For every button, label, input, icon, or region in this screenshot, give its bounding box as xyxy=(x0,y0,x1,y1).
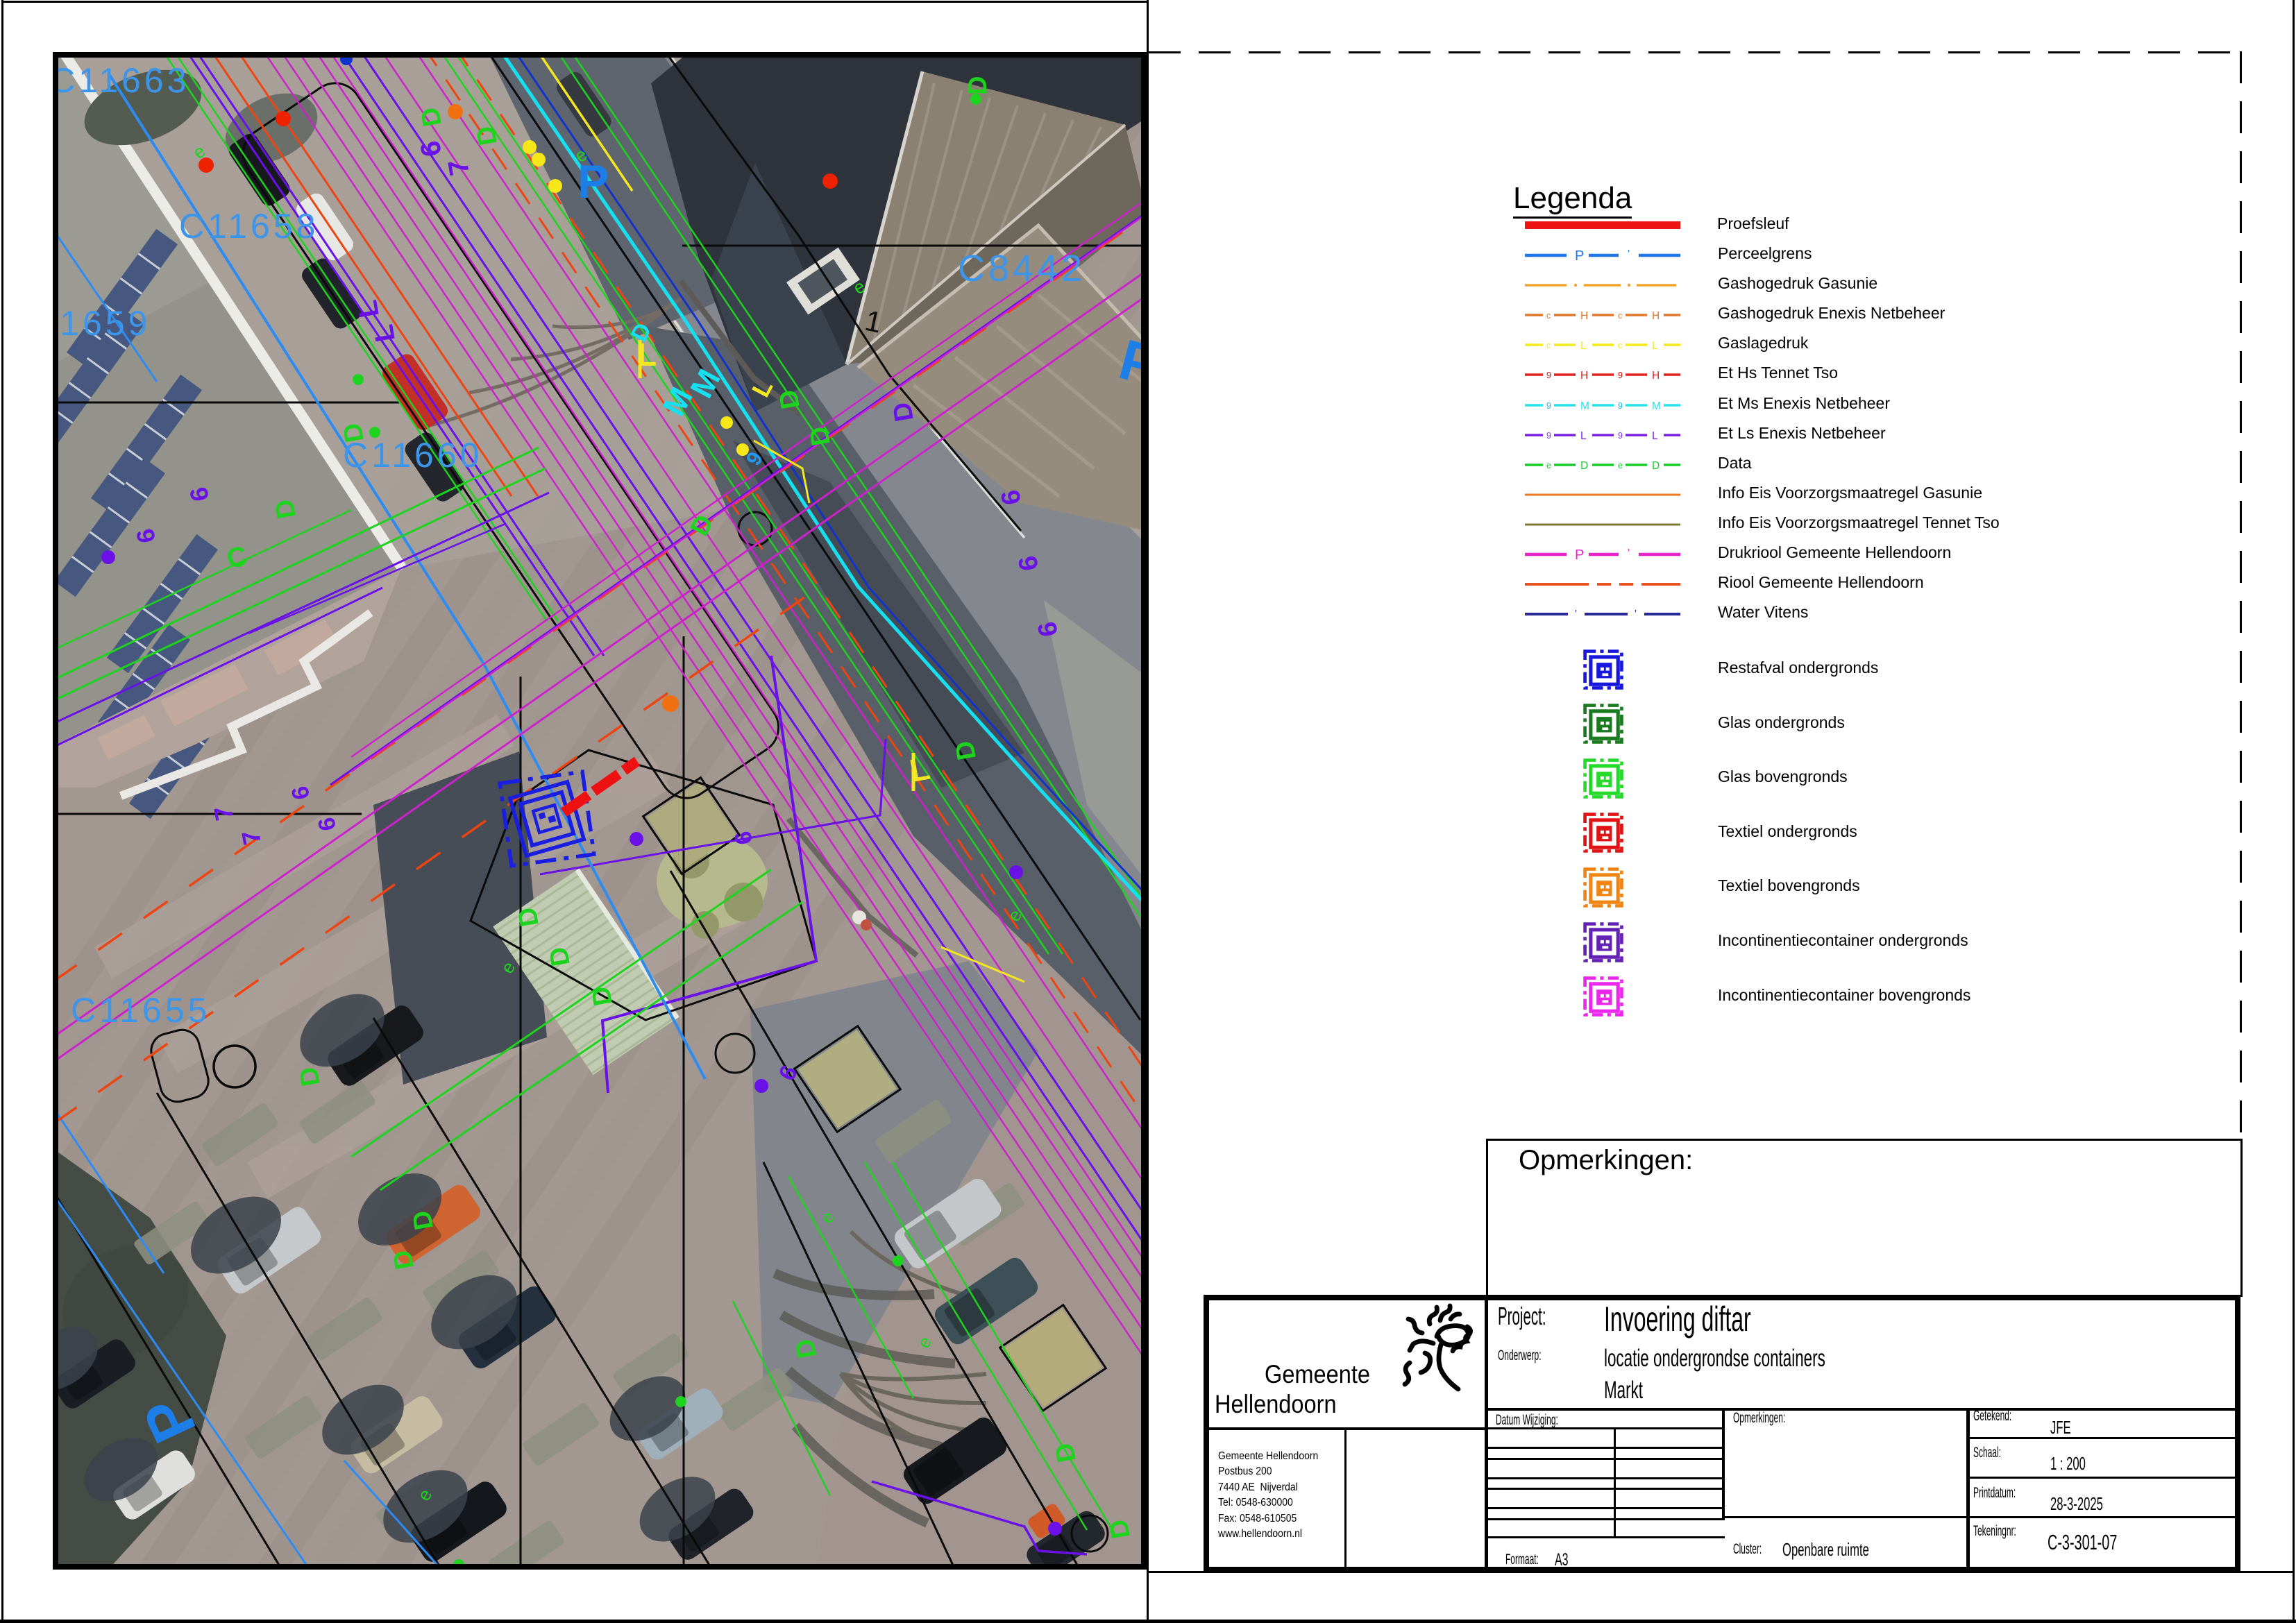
svg-text:C11658: C11658 xyxy=(179,207,319,246)
svg-text:9: 9 xyxy=(1618,371,1623,380)
svg-text:c: c xyxy=(1546,341,1551,350)
svg-text:L: L xyxy=(1580,340,1587,352)
svg-text:c: c xyxy=(1546,311,1551,321)
svg-text:': ' xyxy=(1575,608,1577,620)
svg-text:H: H xyxy=(1580,370,1588,382)
svg-text:C8442: C8442 xyxy=(958,248,1086,289)
svg-text:L: L xyxy=(1652,340,1658,352)
svg-text:9: 9 xyxy=(1618,401,1623,411)
svg-text:M: M xyxy=(1652,400,1661,412)
svg-text:H: H xyxy=(1652,310,1660,322)
svg-text:L: L xyxy=(1580,430,1587,442)
svg-text:H: H xyxy=(1652,370,1660,382)
svg-text:H: H xyxy=(1580,310,1588,322)
svg-text:9: 9 xyxy=(1546,401,1551,411)
svg-text:D: D xyxy=(963,76,993,95)
svg-text:9: 9 xyxy=(1618,431,1623,441)
svg-text:P: P xyxy=(1575,547,1584,563)
svg-text:c: c xyxy=(1618,341,1622,350)
svg-text:D: D xyxy=(1652,460,1660,472)
svg-text:e: e xyxy=(1546,461,1551,470)
svg-text:M: M xyxy=(1580,400,1589,412)
svg-text:9: 9 xyxy=(1546,371,1551,380)
svg-text:e: e xyxy=(1618,461,1623,470)
svg-text:': ' xyxy=(1635,608,1637,620)
svg-text:D: D xyxy=(1580,460,1588,472)
svg-text:L: L xyxy=(637,337,657,373)
svg-text:C11663: C11663 xyxy=(53,61,189,100)
svg-text:9: 9 xyxy=(1546,431,1551,441)
svg-text:L: L xyxy=(1652,430,1658,442)
svg-text:C11659: C11659 xyxy=(53,304,151,343)
svg-text:c: c xyxy=(1618,311,1622,321)
svg-text:C11660: C11660 xyxy=(343,436,482,475)
svg-text:P: P xyxy=(1575,248,1584,264)
svg-text:': ' xyxy=(1628,547,1630,559)
svg-text:C11655: C11655 xyxy=(71,991,210,1030)
svg-text:': ' xyxy=(1628,248,1630,260)
